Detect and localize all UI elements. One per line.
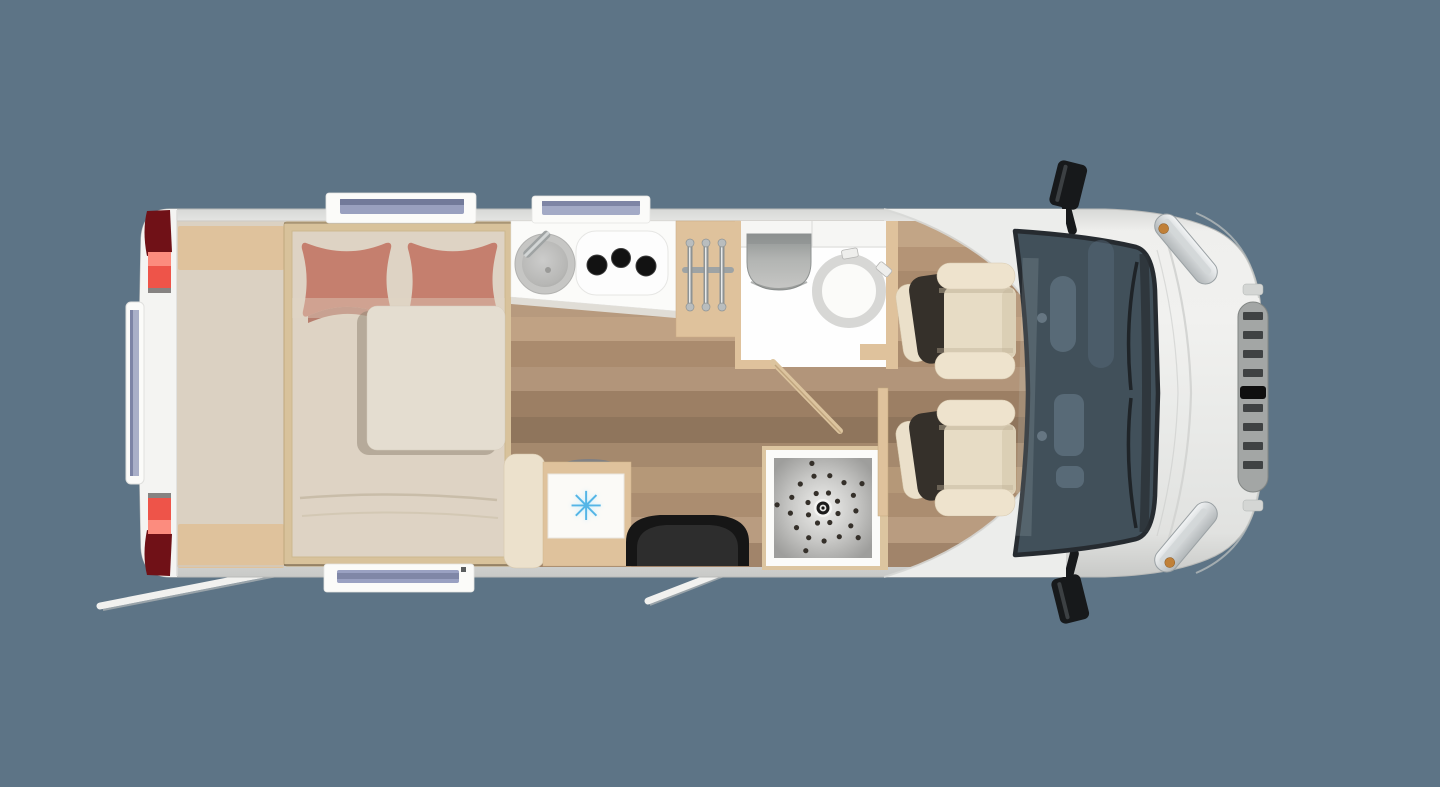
shower-drain-dot — [805, 500, 810, 505]
shower-drain-dot — [806, 512, 811, 517]
shower-drain — [821, 506, 824, 509]
roof-window-shade — [542, 201, 640, 206]
taillight-gap — [148, 493, 171, 498]
shower-drain-dot — [841, 480, 846, 485]
shower-drain-dot — [835, 499, 840, 504]
washbasin-shadow — [747, 234, 811, 244]
sink-drain — [545, 267, 551, 273]
side-window-shade — [337, 573, 459, 579]
grille-slot — [1240, 386, 1266, 399]
armrest — [935, 489, 1015, 516]
shower-drain-dot — [789, 495, 794, 500]
partition-wall — [878, 388, 888, 516]
fridge: ✳ — [543, 459, 631, 566]
floorplan-svg: ✳ — [0, 0, 1440, 787]
kitchen — [511, 221, 676, 318]
shower-drain-dot — [859, 481, 864, 486]
windshield-frame-front — [1144, 254, 1147, 532]
roof-window-shade — [340, 199, 464, 205]
entry-mat — [626, 515, 749, 566]
rail-rods — [686, 239, 726, 311]
taillight-gap — [148, 288, 171, 293]
shower-drain-dot — [835, 511, 840, 516]
seat-base-shade — [1002, 289, 1016, 357]
burner — [612, 249, 631, 268]
double-bed — [284, 222, 513, 566]
seat-base-shade — [1002, 426, 1016, 494]
shower-drain-dot — [775, 502, 780, 507]
duvet — [367, 306, 505, 450]
entry-bench — [504, 454, 545, 568]
shower-drain-dot — [826, 490, 831, 495]
burner — [587, 255, 607, 275]
shower — [762, 446, 888, 570]
floorplan-stage: ✳ — [0, 0, 1440, 787]
shower-drain-dot — [827, 473, 832, 478]
shower-drain-dot — [856, 535, 861, 540]
window-latch — [461, 567, 466, 572]
shower-drain-dot — [815, 520, 820, 525]
bathroom-wall-left — [735, 221, 741, 369]
shower-drain-dot — [851, 493, 856, 498]
taillight-corner-bottom — [145, 530, 173, 576]
shower-drain-dot — [814, 491, 819, 496]
snowflake-icon: ✳ — [569, 484, 603, 530]
shower-drain-dot — [853, 508, 858, 513]
shower-drain-dot — [788, 510, 793, 515]
armrest — [937, 400, 1015, 426]
storage-locker-bottom — [178, 524, 284, 568]
entry-mat-inner — [637, 525, 738, 566]
shower-drain-dot — [848, 523, 853, 528]
rear-window-shade — [130, 310, 133, 476]
shower-drain-dot — [809, 461, 814, 466]
storage-locker-top — [178, 226, 284, 270]
shower-drain-dot — [827, 520, 832, 525]
burner — [636, 256, 656, 276]
bathroom-wall-bottom — [735, 360, 775, 369]
cab-windshield — [1015, 231, 1158, 555]
shower-drain-dot — [837, 534, 842, 539]
armrest — [935, 352, 1015, 379]
shower-drain-dot — [806, 535, 811, 540]
armrest — [937, 263, 1015, 289]
shower-drain-dot — [798, 481, 803, 486]
shower-drain-dot — [822, 538, 827, 543]
grille-trim — [1243, 284, 1263, 295]
shower-drain-dot — [794, 525, 799, 530]
taillight-glow — [148, 252, 171, 266]
taillight-corner-top — [145, 210, 173, 256]
toilet-bowl — [817, 259, 881, 323]
towel-rail-cabinet — [676, 221, 740, 337]
taillight-glow — [148, 520, 171, 534]
bathroom-wall-stub — [860, 344, 890, 360]
grille-trim — [1243, 500, 1263, 511]
shower-drain-dot — [803, 548, 808, 553]
shower-drain-dot — [811, 474, 816, 479]
